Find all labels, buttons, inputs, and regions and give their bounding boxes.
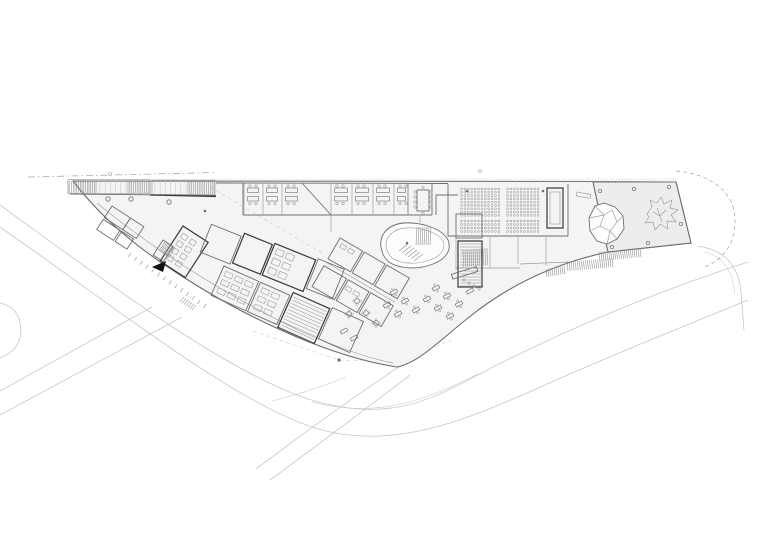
floor-plan-page <box>0 0 780 546</box>
neighbour-parcel-east-1 <box>697 246 744 330</box>
side-street-2 <box>0 317 182 415</box>
side-street-1 <box>0 307 152 391</box>
property-line-northwest <box>28 173 215 178</box>
road-merge-2 <box>270 375 410 480</box>
entrance-arrow-icon <box>152 261 166 272</box>
office-band-top-wall <box>216 183 448 184</box>
floor-plan-canvas <box>0 0 780 546</box>
road-merge-1 <box>256 366 400 469</box>
road-curb <box>312 374 478 409</box>
block-corner-west <box>0 303 21 358</box>
